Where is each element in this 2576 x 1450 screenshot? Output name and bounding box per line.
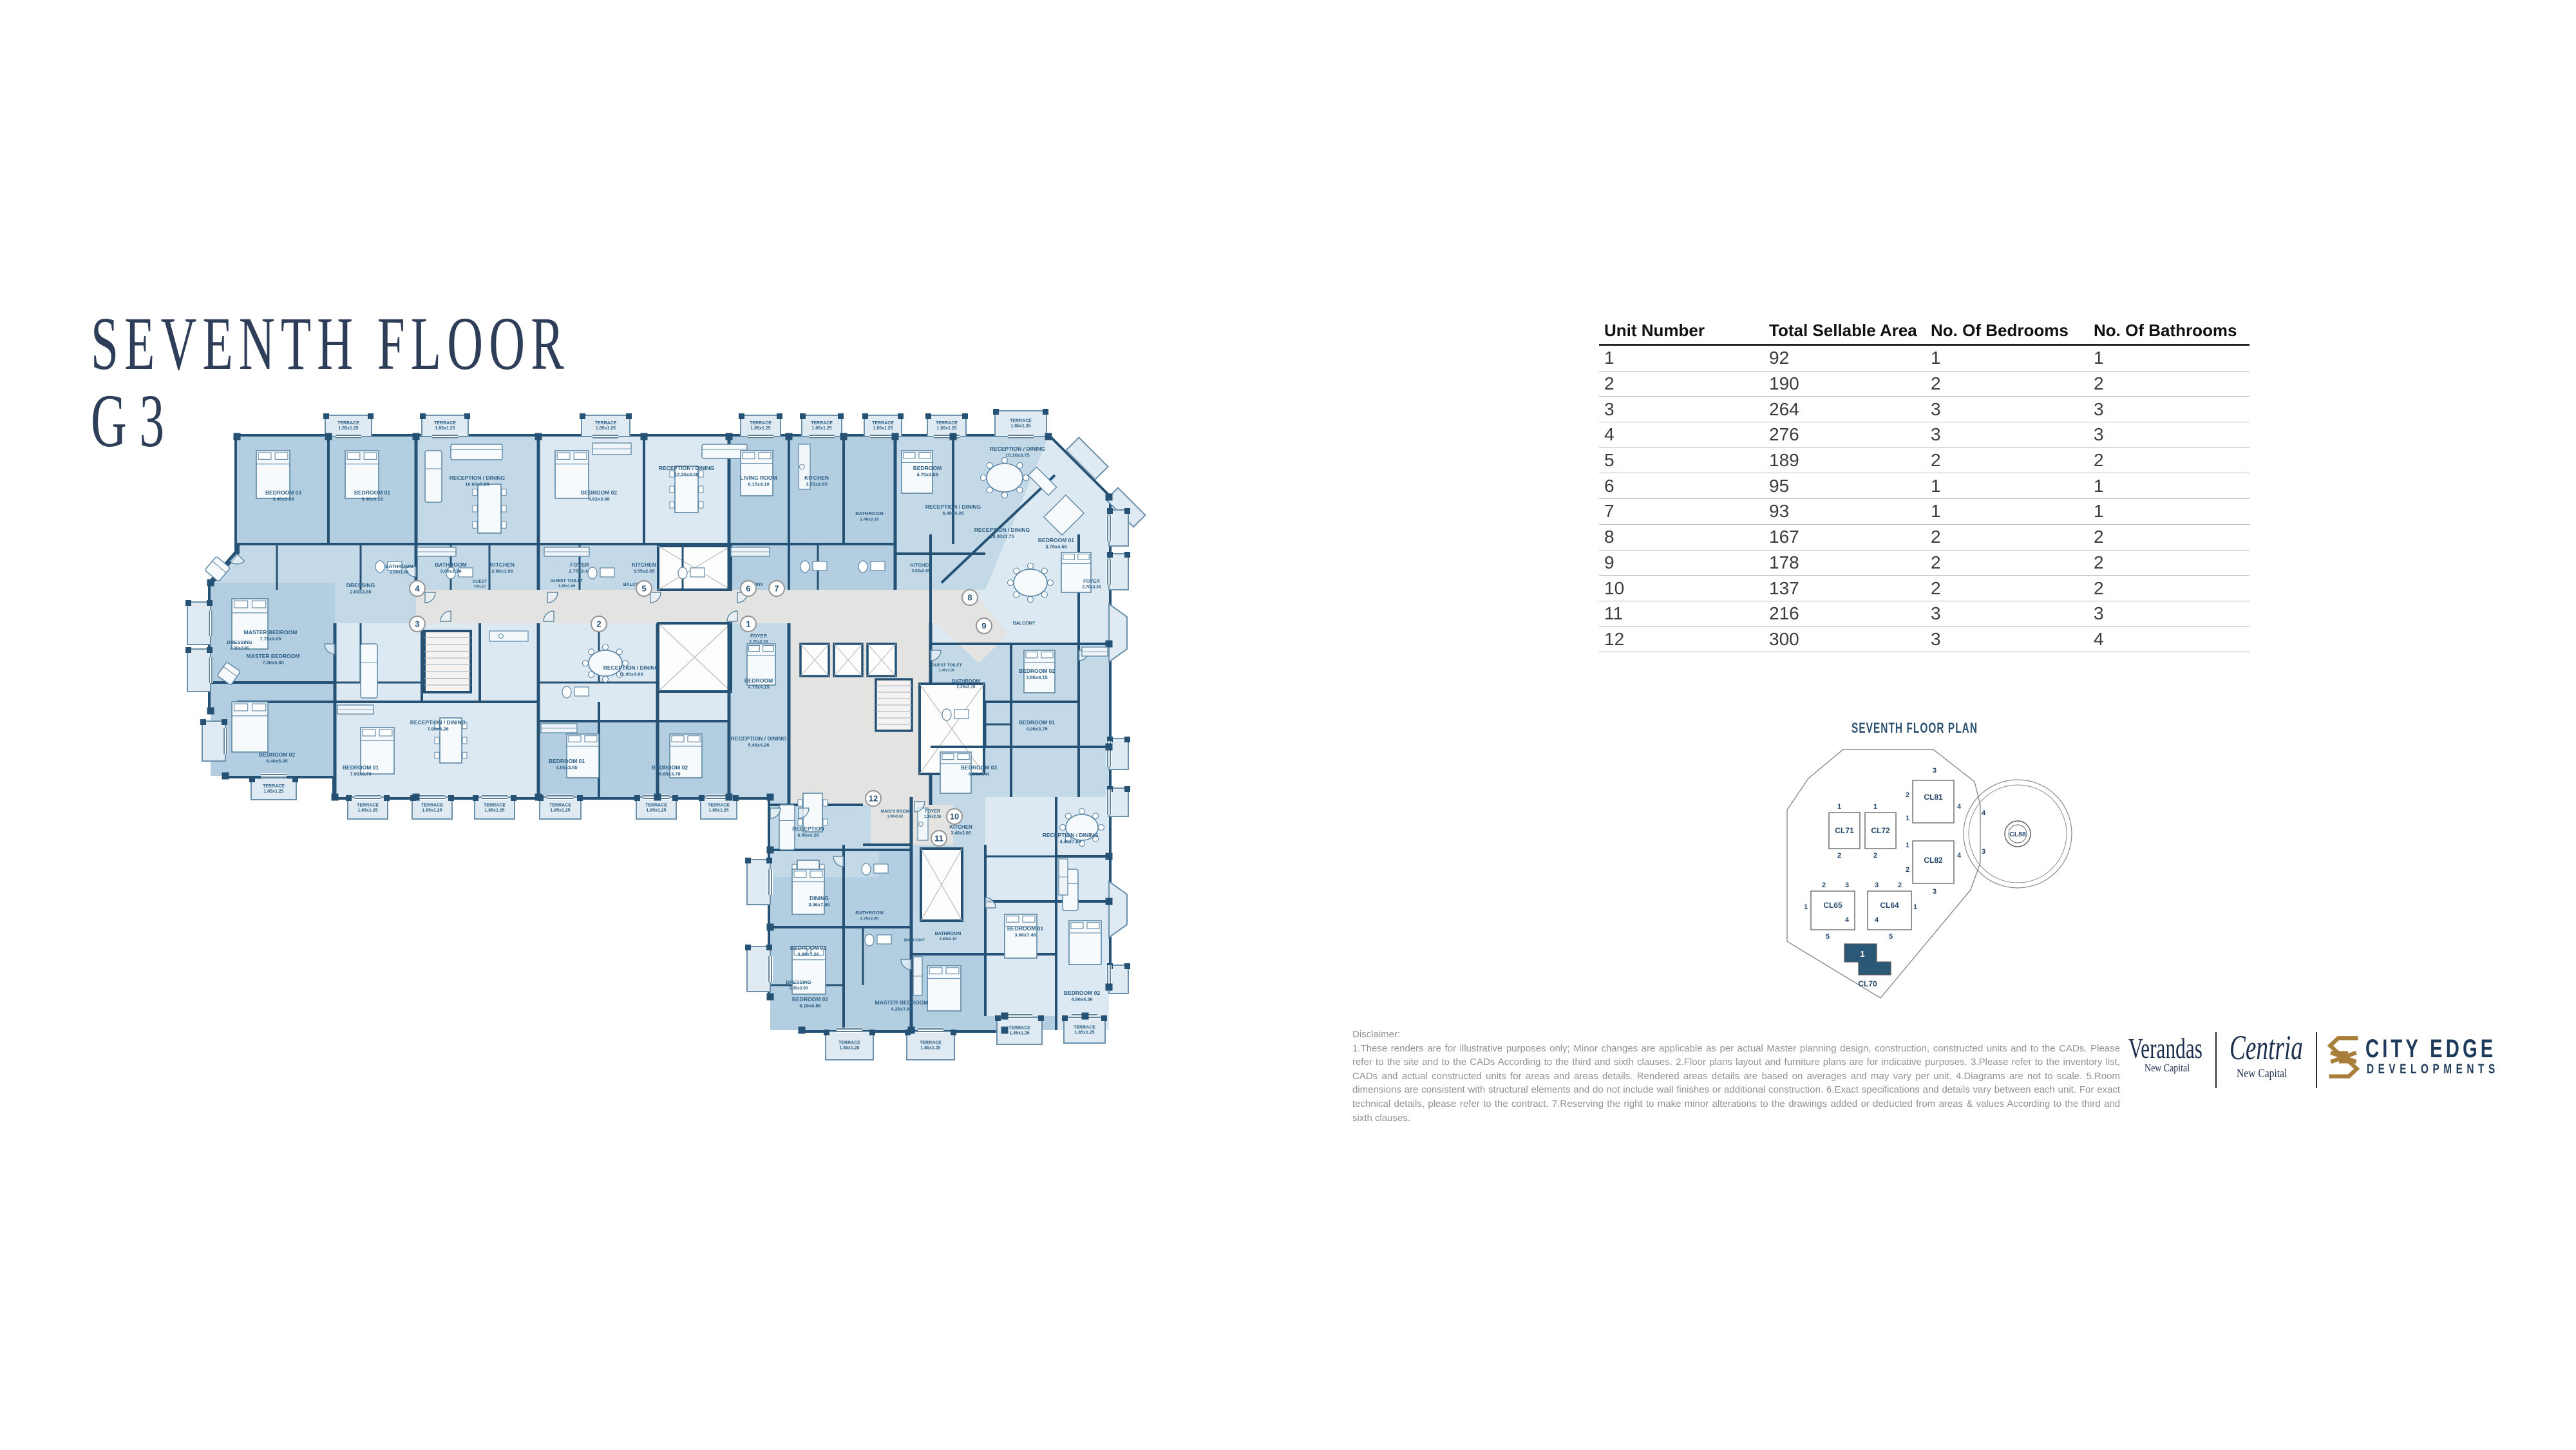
svg-text:TERRACE1.85x1.25: TERRACE1.85x1.25 [263,784,285,794]
svg-text:2: 2 [1898,881,1902,889]
svg-text:KITCHEN3.55x2.65: KITCHEN3.55x2.65 [632,561,656,574]
svg-text:TERRACE1.85x1.25: TERRACE1.85x1.25 [811,421,833,431]
svg-text:2: 2 [1822,881,1826,889]
svg-text:BALCONY: BALCONY [1013,621,1036,626]
svg-text:TERRACE1.85x1.25: TERRACE1.85x1.25 [750,421,772,431]
svg-text:1: 1 [1906,842,1909,849]
svg-text:1: 1 [1913,903,1917,911]
svg-text:1: 1 [1873,803,1877,811]
svg-text:2: 2 [1873,852,1877,860]
svg-text:3: 3 [1933,888,1937,896]
svg-text:5: 5 [1826,933,1830,941]
svg-text:CL81: CL81 [1924,793,1943,802]
svg-text:DRESSING2.35x2.00: DRESSING2.35x2.00 [786,979,811,991]
svg-text:CL72: CL72 [1871,826,1890,835]
svg-text:DRESSING2.00x2.86: DRESSING2.00x2.86 [346,582,375,595]
svg-text:BALCONY: BALCONY [904,938,925,943]
svg-text:1: 1 [1837,803,1841,811]
svg-text:3: 3 [1982,848,1985,856]
svg-text:CL82: CL82 [1924,856,1943,865]
svg-text:1: 1 [746,619,750,629]
svg-text:TERRACE1.85x1.25: TERRACE1.85x1.25 [1009,1026,1030,1036]
svg-text:1: 1 [1906,814,1909,822]
svg-text:CL70: CL70 [1858,979,1877,988]
svg-text:FOYER2.70x3.26: FOYER2.70x3.26 [1083,578,1101,590]
svg-text:TERRACE1.85x1.25: TERRACE1.85x1.25 [838,1041,860,1051]
svg-text:TERRACE1.85x1.25: TERRACE1.85x1.25 [337,421,359,431]
svg-text:7: 7 [774,584,779,594]
svg-text:TERRACE1.85x1.25: TERRACE1.85x1.25 [484,804,506,813]
svg-text:4: 4 [1957,852,1962,860]
svg-text:FOYER2.70x2.26: FOYER2.70x2.26 [750,633,768,645]
svg-text:4: 4 [1957,803,1962,811]
svg-text:DRESSING2.00x2.86: DRESSING2.00x2.86 [227,639,252,651]
svg-text:12: 12 [869,794,878,804]
svg-text:5: 5 [1889,933,1893,941]
svg-text:KITCHEN3.55x2.65: KITCHEN3.55x2.65 [910,562,931,574]
svg-text:TERRACE1.85x1.25: TERRACE1.85x1.25 [645,804,667,813]
svg-text:TERRACE1.85x1.25: TERRACE1.85x1.25 [708,804,730,813]
svg-text:KITCHEN2.66x1.06: KITCHEN2.66x1.06 [490,561,515,574]
svg-text:8: 8 [967,593,972,603]
svg-text:4: 4 [1845,916,1850,924]
svg-text:TERRACE1.85x1.25: TERRACE1.85x1.25 [1074,1026,1095,1035]
svg-text:3: 3 [1875,881,1879,889]
svg-text:3: 3 [415,619,419,629]
svg-text:2: 2 [596,619,601,629]
svg-text:9: 9 [981,621,986,631]
svg-text:1: 1 [1860,949,1864,959]
svg-text:BEDROOM4.75x4.15: BEDROOM4.75x4.15 [744,677,773,690]
svg-text:CL71: CL71 [1835,826,1854,835]
svg-text:TERRACE1.85x1.25: TERRACE1.85x1.25 [595,421,617,431]
svg-text:TERRACE1.85x1.25: TERRACE1.85x1.25 [1010,419,1032,429]
svg-text:TERRACE1.85x1.25: TERRACE1.85x1.25 [357,804,379,813]
svg-text:TERRACE1.85x1.25: TERRACE1.85x1.25 [872,421,894,431]
svg-text:TERRACE1.85x1.25: TERRACE1.85x1.25 [421,804,443,813]
svg-text:CL65: CL65 [1823,901,1842,910]
svg-text:SEVENTH FLOOR PLAN: SEVENTH FLOOR PLAN [1851,720,1978,736]
svg-text:TERRACE1.85x1.25: TERRACE1.85x1.25 [920,1041,942,1051]
svg-text:3: 3 [1933,767,1937,775]
svg-text:TERRACE1.85x1.25: TERRACE1.85x1.25 [434,421,456,431]
svg-text:10: 10 [950,812,959,822]
svg-text:1: 1 [1804,903,1808,911]
svg-text:2: 2 [1906,791,1909,799]
svg-text:11: 11 [934,834,943,843]
svg-text:4: 4 [415,584,420,594]
svg-text:TERRACE1.85x1.25: TERRACE1.85x1.25 [936,421,958,431]
svg-text:CL88: CL88 [2009,831,2026,838]
svg-text:BEDROOM4.70x4.08: BEDROOM4.70x4.08 [913,465,942,478]
svg-text:4: 4 [1875,916,1879,924]
svg-text:2: 2 [1837,852,1841,860]
svg-text:4: 4 [1982,809,1986,817]
svg-text:2: 2 [1906,866,1909,874]
svg-text:3: 3 [1845,881,1849,889]
svg-text:KITCHEN3.55x2.65: KITCHEN3.55x2.65 [804,475,829,487]
svg-text:FOYER2.75x2.46: FOYER2.75x2.46 [569,561,590,574]
svg-text:6: 6 [746,584,750,594]
svg-text:5: 5 [641,584,646,594]
svg-text:DINING3.96x7.86: DINING3.96x7.86 [808,895,829,908]
svg-text:CL64: CL64 [1880,901,1899,910]
svg-text:TERRACE1.85x1.25: TERRACE1.85x1.25 [549,804,571,813]
